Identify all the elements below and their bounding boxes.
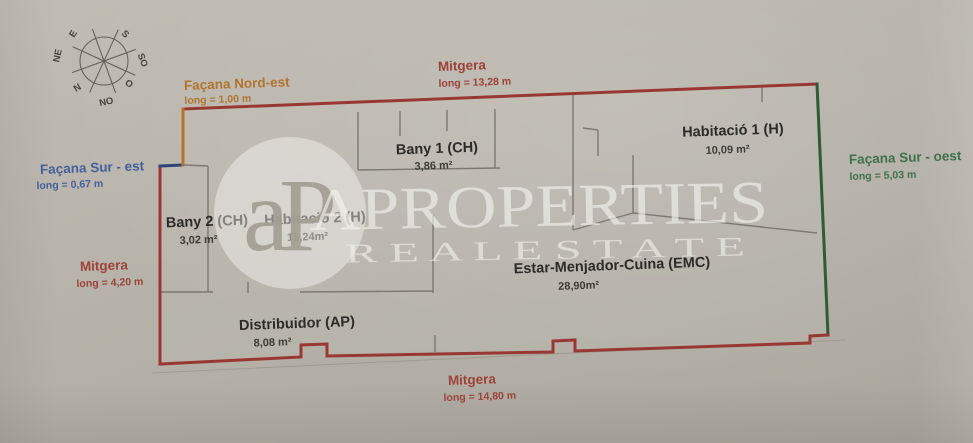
facade-sur-est-length: long = 0,67 m	[36, 178, 103, 192]
facade-mitgera-top-name: Mitgera	[438, 57, 487, 74]
compass-label-n: N	[72, 82, 84, 95]
facade-mitgera-bottom-length: long = 14,80 m	[443, 390, 516, 405]
compass-label-e: E	[67, 28, 80, 39]
room-emc-area: 28,90m²	[558, 279, 600, 292]
floorplan-photo: E S NE SO N O NO	[0, 0, 973, 443]
room-habitacio-1-area: 10,09 m²	[705, 143, 750, 157]
facade-label-mitgera-left: Mitgera long = 4,20 m	[76, 257, 144, 290]
facade-mitgera-bottom-name: Mitgera	[448, 371, 497, 388]
facade-label-nord-est: Façana Nord-est long = 1,00 m	[184, 74, 291, 107]
facade-label-sur-est: Façana Sur - est long = 0,67 m	[36, 158, 146, 192]
facade-sur-est-name: Façana Sur - est	[40, 158, 145, 177]
facade-label-sur-oest: Façana Sur - oest long = 5,03 m	[849, 148, 963, 183]
room-bany-1-name: Bany 1 (CH)	[396, 140, 479, 159]
facade-nord-est-name: Façana Nord-est	[184, 74, 291, 93]
compass-label-o: O	[123, 78, 135, 91]
facade-sur-oest-name: Façana Sur - oest	[849, 148, 962, 167]
facade-nord-est-length: long = 1,00 m	[184, 93, 251, 107]
facade-label-mitgera-bottom: Mitgera long = 14,80 m	[443, 371, 517, 405]
room-bany-2-area: 3,02 m²	[179, 234, 218, 247]
floorplan-svg: E S NE SO N O NO	[0, 0, 973, 443]
facade-mitgera-top-length: long = 13,28 m	[438, 75, 511, 90]
compass-label-so: SO	[135, 52, 150, 69]
facade-sur-oest-length: long = 5,03 m	[849, 169, 916, 183]
wall-facana-sur-est	[160, 165, 183, 166]
facade-label-mitgera-top: Mitgera long = 13,28 m	[438, 56, 512, 90]
compass-label-s: S	[119, 28, 131, 40]
facade-mitgera-left-name: Mitgera	[80, 257, 129, 274]
room-distribuidor-area: 8,08 m²	[253, 336, 292, 349]
room-bany-1-area: 3,86 m²	[414, 159, 453, 172]
interior-wall	[184, 165, 208, 166]
compass-label-no: NO	[98, 95, 114, 109]
facade-mitgera-left-length: long = 4,20 m	[76, 276, 143, 290]
interior-wall	[300, 291, 433, 292]
compass-label-ne: NE	[51, 48, 65, 63]
